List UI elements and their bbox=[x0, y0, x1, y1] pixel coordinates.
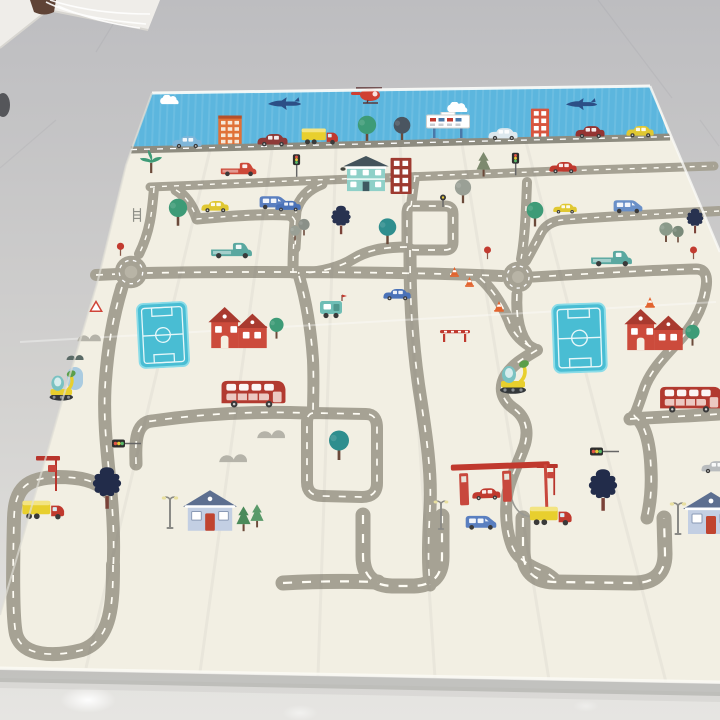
soccer-field bbox=[137, 302, 190, 369]
roundabout bbox=[503, 262, 534, 293]
pond-dot bbox=[340, 167, 345, 171]
photo-scene bbox=[0, 0, 720, 720]
sky-border bbox=[131, 86, 670, 152]
orange-tower bbox=[218, 116, 241, 148]
roundabout bbox=[115, 256, 147, 288]
brick-tower bbox=[391, 158, 412, 194]
red-tower bbox=[531, 109, 549, 140]
soccer-field bbox=[552, 303, 607, 373]
